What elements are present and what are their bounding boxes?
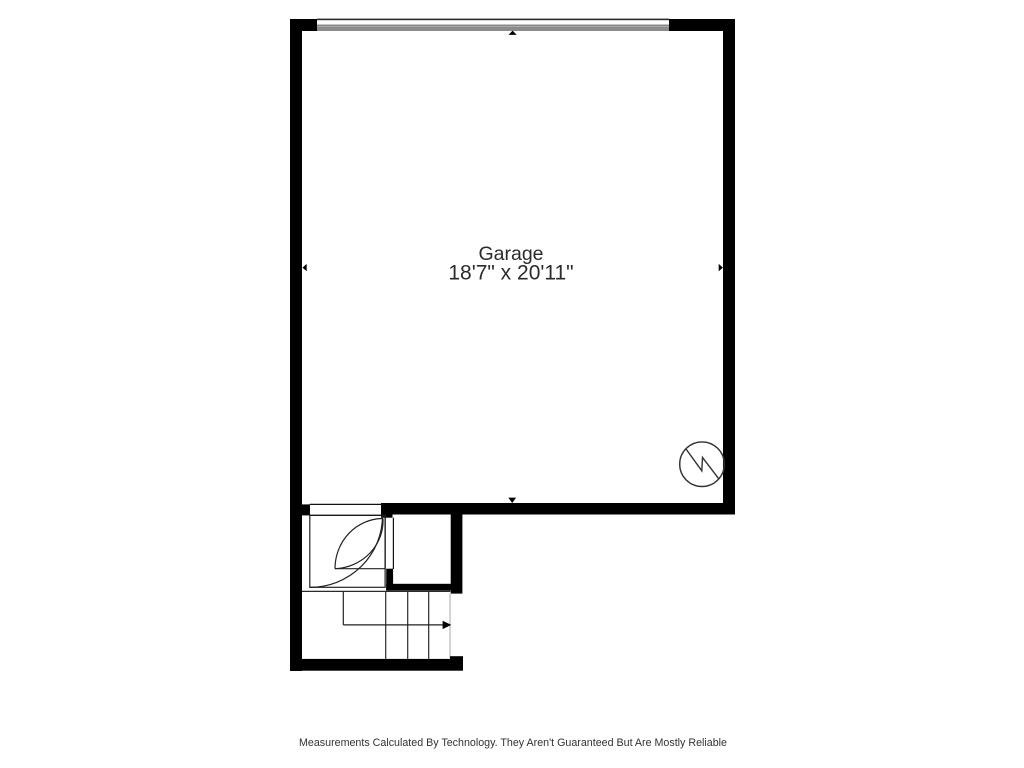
svg-text:18'7" x 20'11": 18'7" x 20'11" [448, 262, 573, 285]
svg-text:Measurements Calculated By Tec: Measurements Calculated By Technology. T… [299, 737, 727, 749]
